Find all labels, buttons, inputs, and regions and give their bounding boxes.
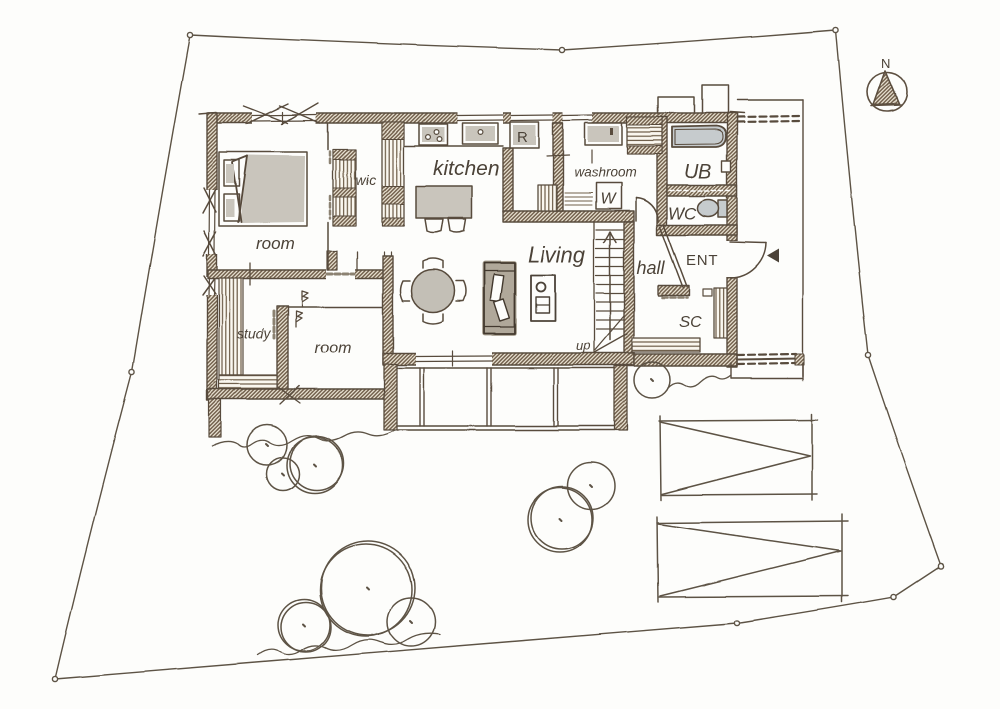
svg-text:W: W xyxy=(600,191,617,208)
svg-text:room: room xyxy=(315,340,351,357)
svg-text:wic: wic xyxy=(356,172,376,188)
svg-text:kitchen: kitchen xyxy=(433,157,500,180)
svg-text:up: up xyxy=(576,338,590,353)
svg-text:study: study xyxy=(237,325,271,341)
svg-text:Living: Living xyxy=(528,242,586,267)
svg-text:ENT: ENT xyxy=(686,252,718,269)
svg-text:R: R xyxy=(517,129,528,146)
svg-text:N: N xyxy=(881,56,890,71)
svg-text:room: room xyxy=(256,234,295,253)
svg-text:UB: UB xyxy=(684,161,712,183)
svg-text:WC: WC xyxy=(668,204,697,223)
svg-text:washroom: washroom xyxy=(574,165,636,180)
svg-text:hall: hall xyxy=(637,258,666,278)
svg-text:SC: SC xyxy=(679,314,702,331)
